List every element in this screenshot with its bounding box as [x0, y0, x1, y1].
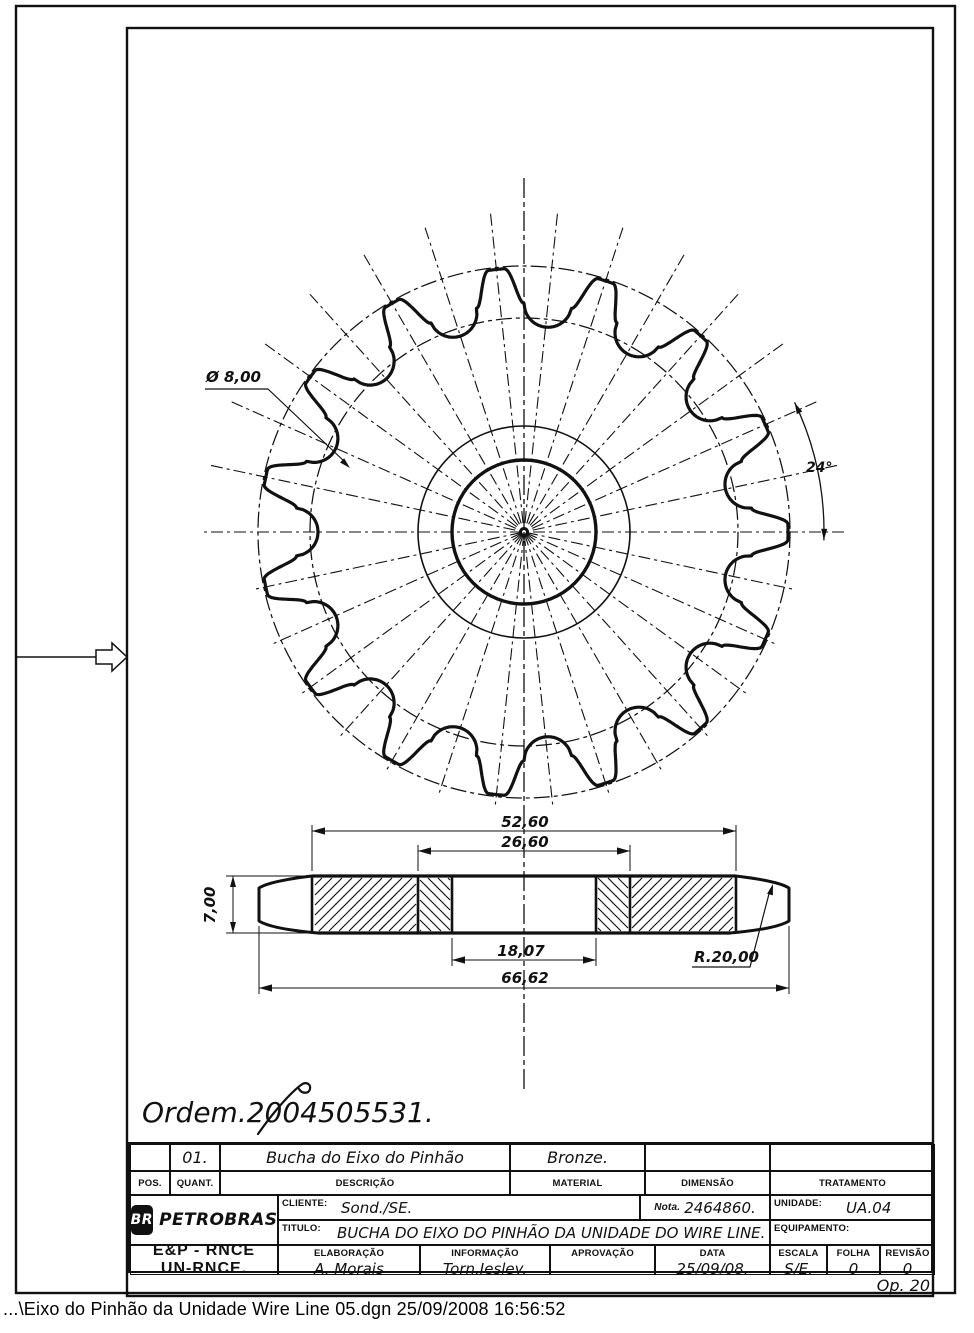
header-dimensao-text: DIMENSÃO: [681, 1178, 734, 1189]
equipamento-label: EQUIPAMENTO:: [774, 1223, 849, 1234]
item-descricao-text: Bucha do Eixo do Pinhão: [266, 1148, 464, 1167]
header-quant-text: QUANT.: [177, 1178, 214, 1189]
folha-value: 0: [849, 1260, 859, 1275]
header-dimensao: DIMENSÃO: [645, 1171, 770, 1195]
titulo-value: BUCHA DO EIXO DO PINHÃO DA UNIDADE DO WI…: [337, 1224, 765, 1242]
nota-cell: Nota. 2464860.: [640, 1195, 770, 1220]
cliente-value: Sond./SE.: [341, 1199, 412, 1217]
logo-cell: BR PETROBRAS: [130, 1195, 278, 1245]
dim-thickness: 7,00: [201, 886, 219, 923]
title-block: 01. Bucha do Eixo do Pinhão Bronze. POS.…: [128, 1142, 933, 1273]
header-pos-text: POS.: [138, 1178, 162, 1189]
org-line2: UN-RNCE.: [161, 1260, 247, 1275]
folha-label: FOLHA: [837, 1248, 871, 1259]
elaboracao-value: A. Morais: [314, 1260, 384, 1275]
status-bar-filename: ...\Eixo do Pinhão da Unidade Wire Line …: [3, 1299, 566, 1320]
informacao-cell: INFORMAÇÃO Torn.Jesley.: [420, 1245, 550, 1275]
escala-label: ESCALA: [778, 1248, 818, 1259]
nota-value: 2464860.: [684, 1199, 756, 1217]
dim-flange-width: 52,60: [501, 813, 548, 831]
escala-value: S/E.: [784, 1260, 813, 1275]
aprovacao-label: APROVAÇÃO: [571, 1248, 634, 1259]
informacao-label: INFORMAÇÃO: [451, 1248, 518, 1259]
data-label: DATA: [700, 1248, 726, 1259]
unidade-value: UA.04: [846, 1199, 891, 1217]
informacao-value: Torn.Jesley.: [443, 1260, 527, 1275]
header-material-text: MATERIAL: [553, 1178, 603, 1189]
header-descricao: DESCRIÇÃO: [220, 1171, 510, 1195]
unidade-cell: UNIDADE: UA.04: [770, 1195, 935, 1220]
nota-label: Nota.: [654, 1202, 680, 1213]
data-value: 25/09/08.: [676, 1260, 748, 1275]
escala-cell: ESCALA S/E.: [770, 1245, 827, 1275]
cliente-label: CLIENTE:: [282, 1198, 327, 1209]
dim-overall: 66,62: [501, 969, 548, 987]
header-tratamento: TRATAMENTO: [770, 1171, 935, 1195]
header-material: MATERIAL: [510, 1171, 645, 1195]
org-cell: E&P - RNCE UN-RNCE.: [130, 1245, 278, 1275]
revisao-value: 0: [903, 1260, 913, 1275]
item-quant-value: 01.: [170, 1144, 220, 1171]
cad-drawing-canvas: Ø 8,00 24° 52,60 26,60 18,07 66,62 R.20,…: [0, 0, 974, 1333]
dim-hub-width: 26,60: [501, 833, 548, 851]
item-pos-value: [130, 1144, 170, 1171]
data-cell: DATA 25/09/08.: [655, 1245, 770, 1275]
header-pos: POS.: [130, 1171, 170, 1195]
operation-note: Op. 20: [840, 1276, 930, 1295]
elaboracao-cell: ELABORAÇÃO A. Morais: [278, 1245, 420, 1275]
drawing-sheet: Ø 8,00 24° 52,60 26,60 18,07 66,62 R.20,…: [0, 0, 974, 1333]
hole-diameter-label: Ø 8,00: [205, 368, 261, 386]
revisao-label: REVISÃO: [885, 1248, 929, 1259]
unidade-label: UNIDADE:: [774, 1198, 822, 1209]
header-descricao-text: DESCRIÇÃO: [336, 1178, 395, 1189]
item-material-text: Bronze.: [547, 1148, 608, 1167]
folha-cell: FOLHA 0: [827, 1245, 880, 1275]
order-number-note: Ordem.2004505531.: [142, 1096, 434, 1129]
elaboracao-label: ELABORAÇÃO: [314, 1248, 384, 1259]
item-material-value: Bronze.: [510, 1144, 645, 1171]
dim-radius: R.20,00: [694, 948, 759, 966]
revisao-cell: REVISÃO 0: [880, 1245, 935, 1275]
cliente-cell: CLIENTE: Sond./SE.: [278, 1195, 640, 1220]
item-dimensao-value: [645, 1144, 770, 1171]
dim-bore: 18,07: [497, 942, 545, 960]
petrobras-brand-text: PETROBRAS: [159, 1210, 277, 1230]
header-tratamento-text: TRATAMENTO: [819, 1178, 886, 1189]
titulo-label: TITULO:: [282, 1223, 321, 1234]
org-line1: E&P - RNCE: [153, 1245, 255, 1260]
item-tratamento-value: [770, 1144, 935, 1171]
item-descricao-value: Bucha do Eixo do Pinhão: [220, 1144, 510, 1171]
titulo-cell: TITULO: BUCHA DO EIXO DO PINHÃO DA UNIDA…: [278, 1220, 770, 1245]
header-quant: QUANT.: [170, 1171, 220, 1195]
tooth-angle-label: 24°: [806, 460, 832, 476]
petrobras-br-logo-icon: BR: [131, 1205, 153, 1235]
equipamento-cell: EQUIPAMENTO:: [770, 1220, 935, 1245]
aprovacao-cell: APROVAÇÃO: [550, 1245, 655, 1275]
item-quant-text: 01.: [182, 1148, 207, 1167]
